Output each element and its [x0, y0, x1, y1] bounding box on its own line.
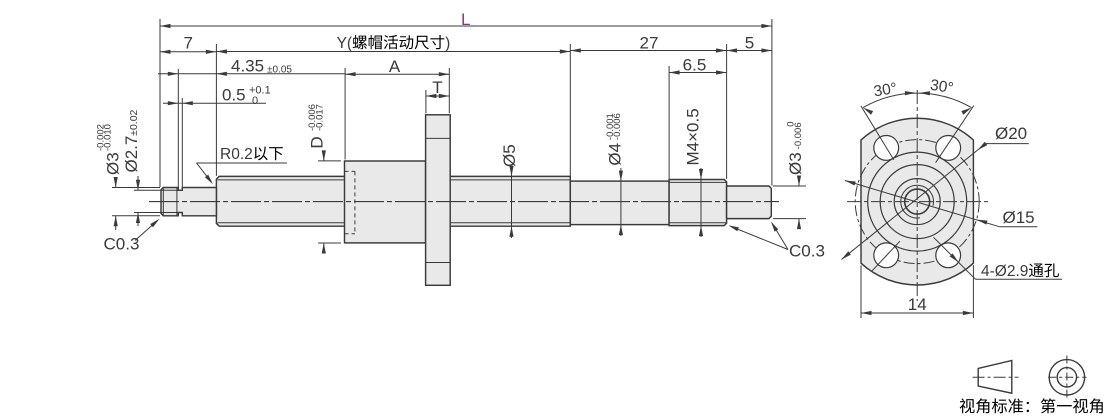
- svg-text:Ø15: Ø15: [1003, 208, 1035, 227]
- svg-text:-0.006: -0.006: [612, 113, 623, 140]
- svg-text:Ø20: Ø20: [995, 124, 1027, 143]
- svg-text:): ): [445, 35, 450, 52]
- svg-text:6.5: 6.5: [683, 56, 707, 75]
- svg-text:Ø4: Ø4: [606, 143, 625, 166]
- svg-text:Ø3: Ø3: [104, 152, 123, 175]
- svg-text:±0.05: ±0.05: [267, 65, 292, 76]
- svg-text:30°: 30°: [872, 80, 898, 100]
- svg-text:30°: 30°: [929, 77, 955, 97]
- svg-text:-0.017: -0.017: [314, 104, 325, 131]
- svg-text:5: 5: [745, 34, 754, 53]
- svg-text:0: 0: [252, 95, 258, 107]
- svg-text:R0.2: R0.2: [220, 146, 253, 163]
- svg-text:Ø3: Ø3: [786, 152, 805, 175]
- svg-text:0.5: 0.5: [222, 86, 246, 105]
- svg-text:D: D: [308, 136, 327, 148]
- svg-text:C0.3: C0.3: [789, 242, 825, 261]
- svg-text:Y(: Y(: [337, 35, 353, 52]
- svg-text:7: 7: [184, 34, 193, 53]
- svg-text:L: L: [461, 10, 470, 29]
- svg-text:±0.02: ±0.02: [128, 109, 140, 135]
- svg-text:A: A: [389, 57, 401, 76]
- svg-text:Ø2.7: Ø2.7: [122, 136, 141, 173]
- svg-text:4-Ø2.9: 4-Ø2.9: [981, 263, 1028, 280]
- svg-text:T: T: [432, 78, 442, 97]
- svg-text:14: 14: [908, 295, 927, 314]
- svg-text:-0.006: -0.006: [793, 122, 804, 149]
- svg-text:C0.3: C0.3: [104, 235, 140, 254]
- svg-text:-0.010: -0.010: [103, 124, 114, 151]
- svg-text:Ø5: Ø5: [500, 144, 519, 167]
- svg-text:4.35: 4.35: [231, 57, 264, 76]
- svg-text:M4×0.5: M4×0.5: [684, 108, 703, 165]
- svg-text:27: 27: [640, 34, 659, 53]
